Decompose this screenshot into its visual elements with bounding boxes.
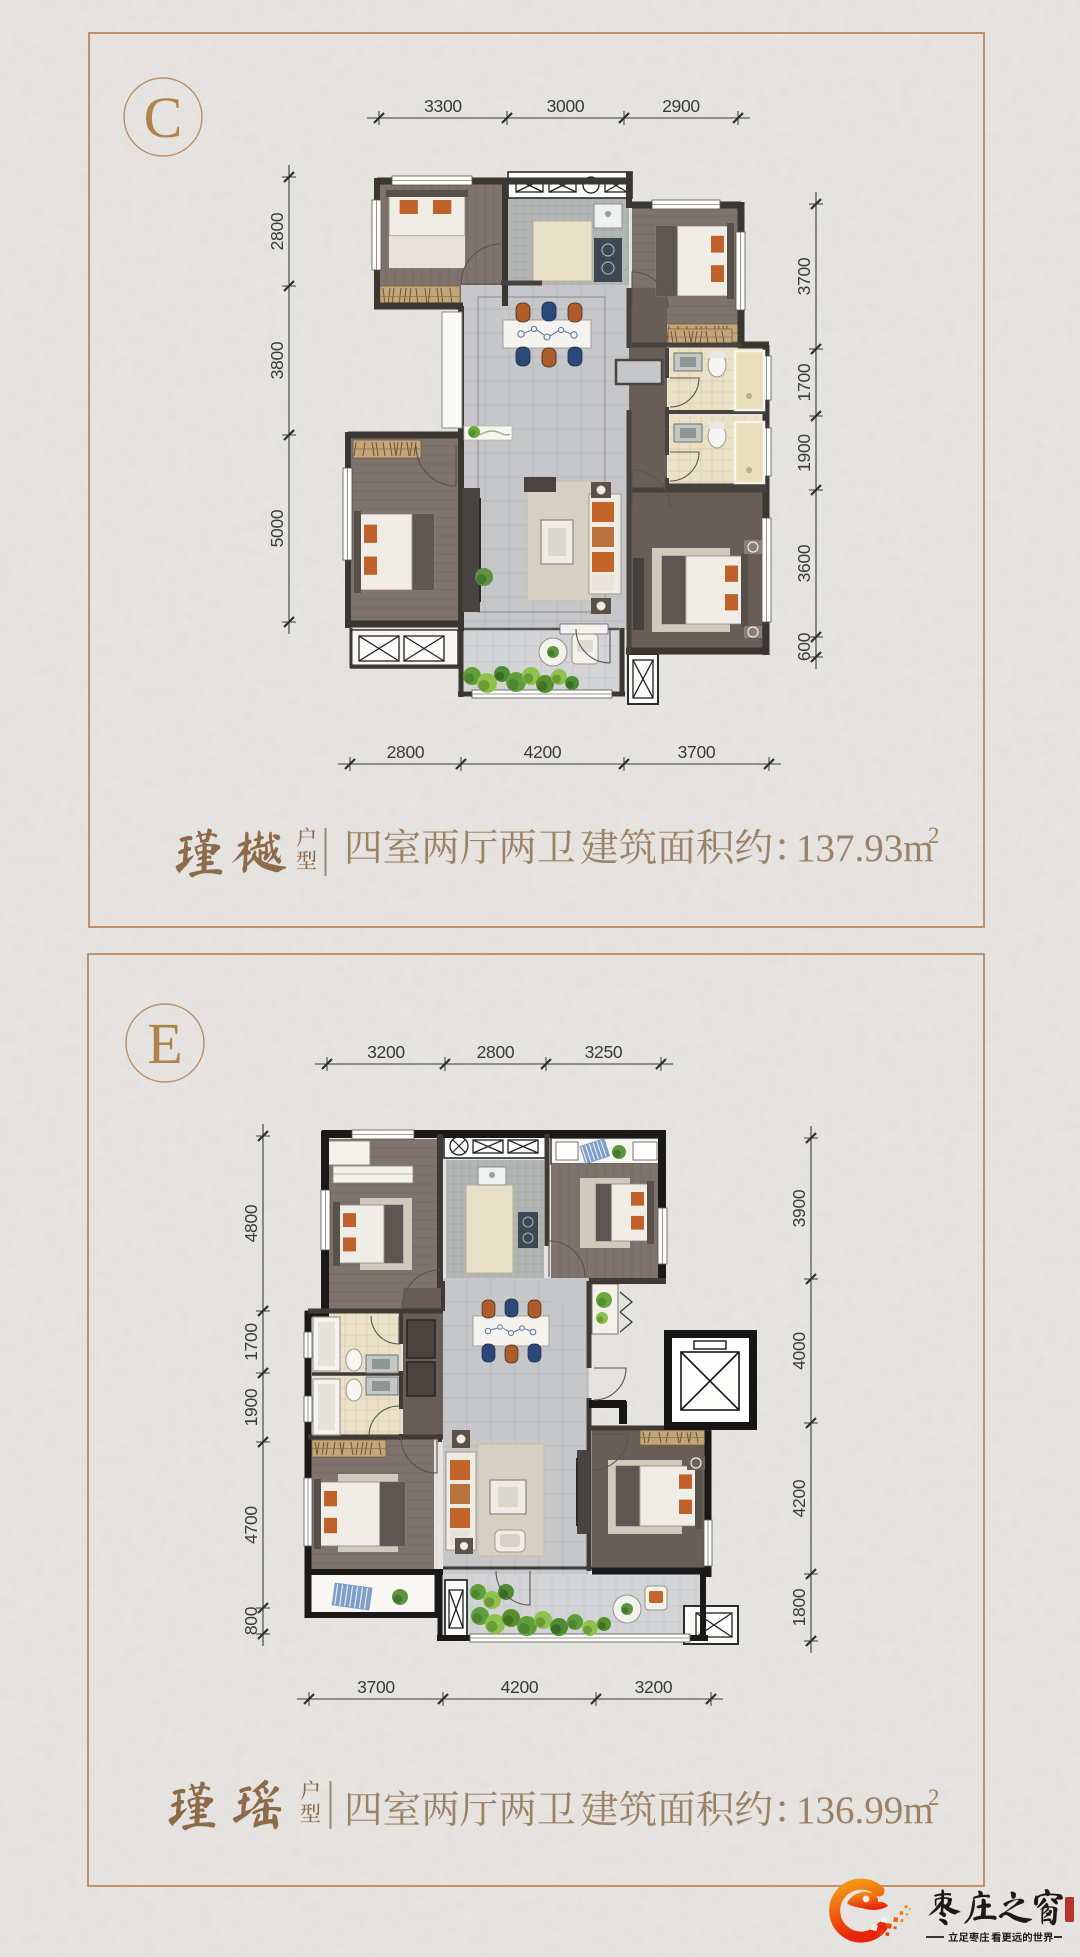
svg-text:600: 600: [794, 632, 814, 661]
svg-text:5000: 5000: [267, 509, 287, 547]
svg-text:1800: 1800: [789, 1588, 809, 1626]
svg-text:4000: 4000: [789, 1332, 809, 1370]
svg-text:2800: 2800: [477, 1042, 515, 1062]
svg-text:E: E: [147, 1011, 182, 1076]
svg-text:4800: 4800: [241, 1204, 261, 1242]
svg-text:3300: 3300: [424, 96, 462, 116]
svg-text:3250: 3250: [585, 1042, 623, 1062]
svg-text:1900: 1900: [794, 434, 814, 472]
svg-text:1700: 1700: [794, 363, 814, 401]
svg-text:3700: 3700: [357, 1677, 395, 1697]
svg-text:C: C: [144, 85, 183, 150]
svg-text:1700: 1700: [241, 1323, 261, 1361]
svg-text:800: 800: [241, 1606, 261, 1635]
svg-text:3900: 3900: [789, 1189, 809, 1227]
svg-text:4200: 4200: [501, 1677, 539, 1697]
svg-text:2: 2: [928, 823, 940, 848]
svg-text:2800: 2800: [267, 212, 287, 250]
svg-text:2: 2: [928, 1785, 940, 1810]
svg-text:1900: 1900: [241, 1388, 261, 1426]
svg-text:2900: 2900: [662, 96, 700, 116]
svg-text:136.99m: 136.99m: [796, 1789, 934, 1832]
svg-text:3700: 3700: [794, 257, 814, 295]
svg-text:3800: 3800: [267, 341, 287, 379]
svg-text:4200: 4200: [524, 742, 562, 762]
svg-text:4700: 4700: [241, 1506, 261, 1544]
svg-text:137.93m: 137.93m: [796, 827, 934, 870]
svg-text:2800: 2800: [387, 742, 425, 762]
svg-text:3000: 3000: [547, 96, 585, 116]
svg-text:4200: 4200: [789, 1479, 809, 1517]
svg-text:3200: 3200: [635, 1677, 673, 1697]
svg-text:3600: 3600: [794, 544, 814, 582]
svg-text:3200: 3200: [367, 1042, 405, 1062]
svg-text:3700: 3700: [678, 742, 716, 762]
